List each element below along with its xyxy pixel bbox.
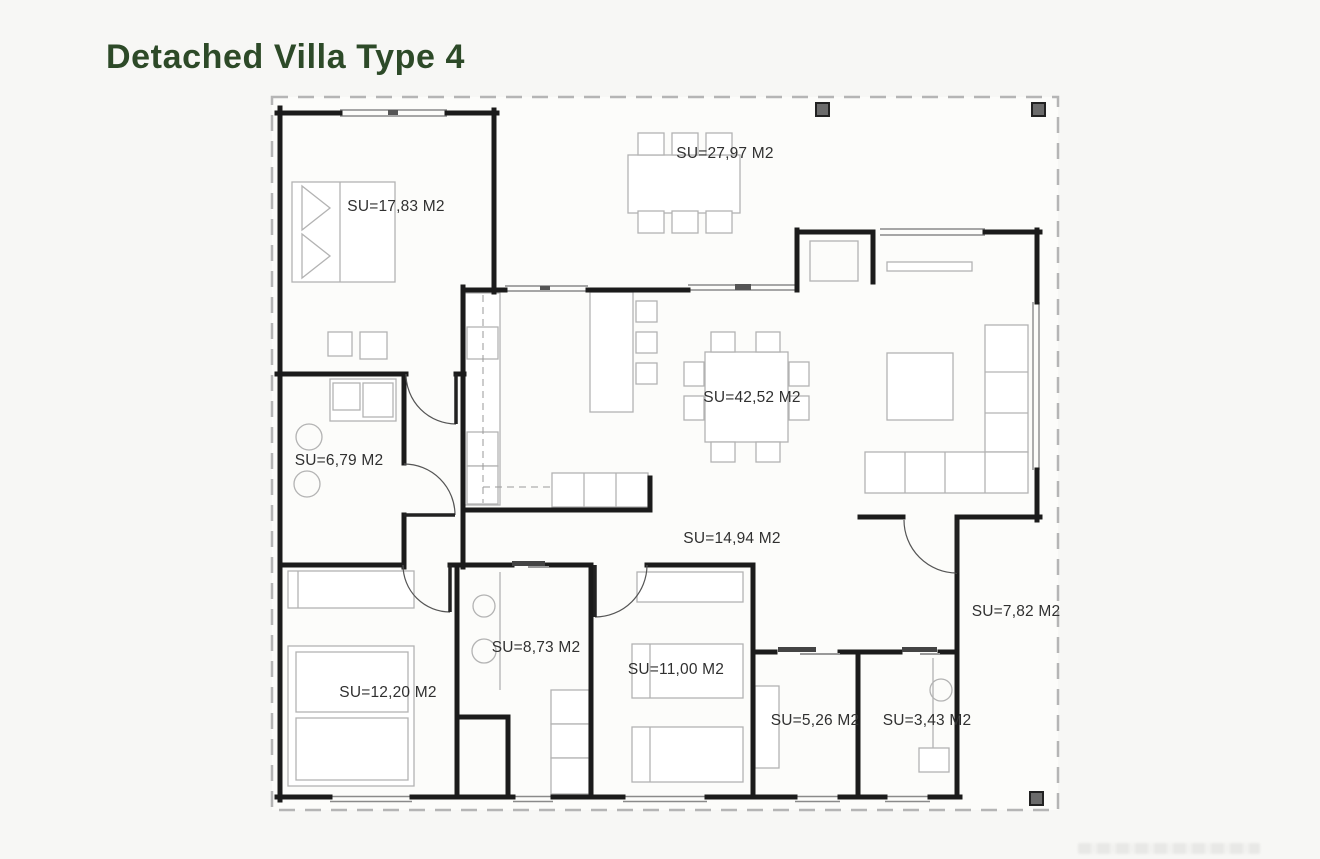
room-label-wc: SU=3,43 M2 <box>883 712 972 729</box>
pillar-icon <box>1032 103 1045 116</box>
double-bed <box>292 182 395 282</box>
room-label-master-bedroom: SU=17,83 M2 <box>347 198 444 215</box>
tv-console <box>887 262 972 271</box>
pillar-icon <box>1030 792 1043 805</box>
coffee-table <box>887 353 953 420</box>
room-label-hallway: SU=14,94 M2 <box>683 530 780 547</box>
room-label-laundry: SU=6,79 M2 <box>295 452 384 469</box>
room-label-bedroom-3: SU=11,00 M2 <box>628 661 724 678</box>
pillar-icon <box>816 103 829 116</box>
room-label-entrance-porch: SU=7,82 M2 <box>972 603 1061 620</box>
room-label-living-room: SU=42,52 M2 <box>703 389 800 406</box>
room-label-utility-room: SU=5,26 M2 <box>771 712 860 729</box>
floor-plan-page: Detached Villa Type 4 <box>0 0 1320 859</box>
watermark-smudge <box>1078 843 1260 854</box>
floor-plan-canvas: SU=27,97 M2 SU=17,83 M2 SU=42,52 M2 SU=6… <box>0 0 1320 859</box>
room-label-bedroom-2: SU=12,20 M2 <box>339 684 436 701</box>
room-label-bathroom: SU=8,73 M2 <box>492 639 581 656</box>
single-beds-bedroom-2 <box>288 571 414 786</box>
room-label-terrace: SU=27,97 M2 <box>676 145 773 162</box>
